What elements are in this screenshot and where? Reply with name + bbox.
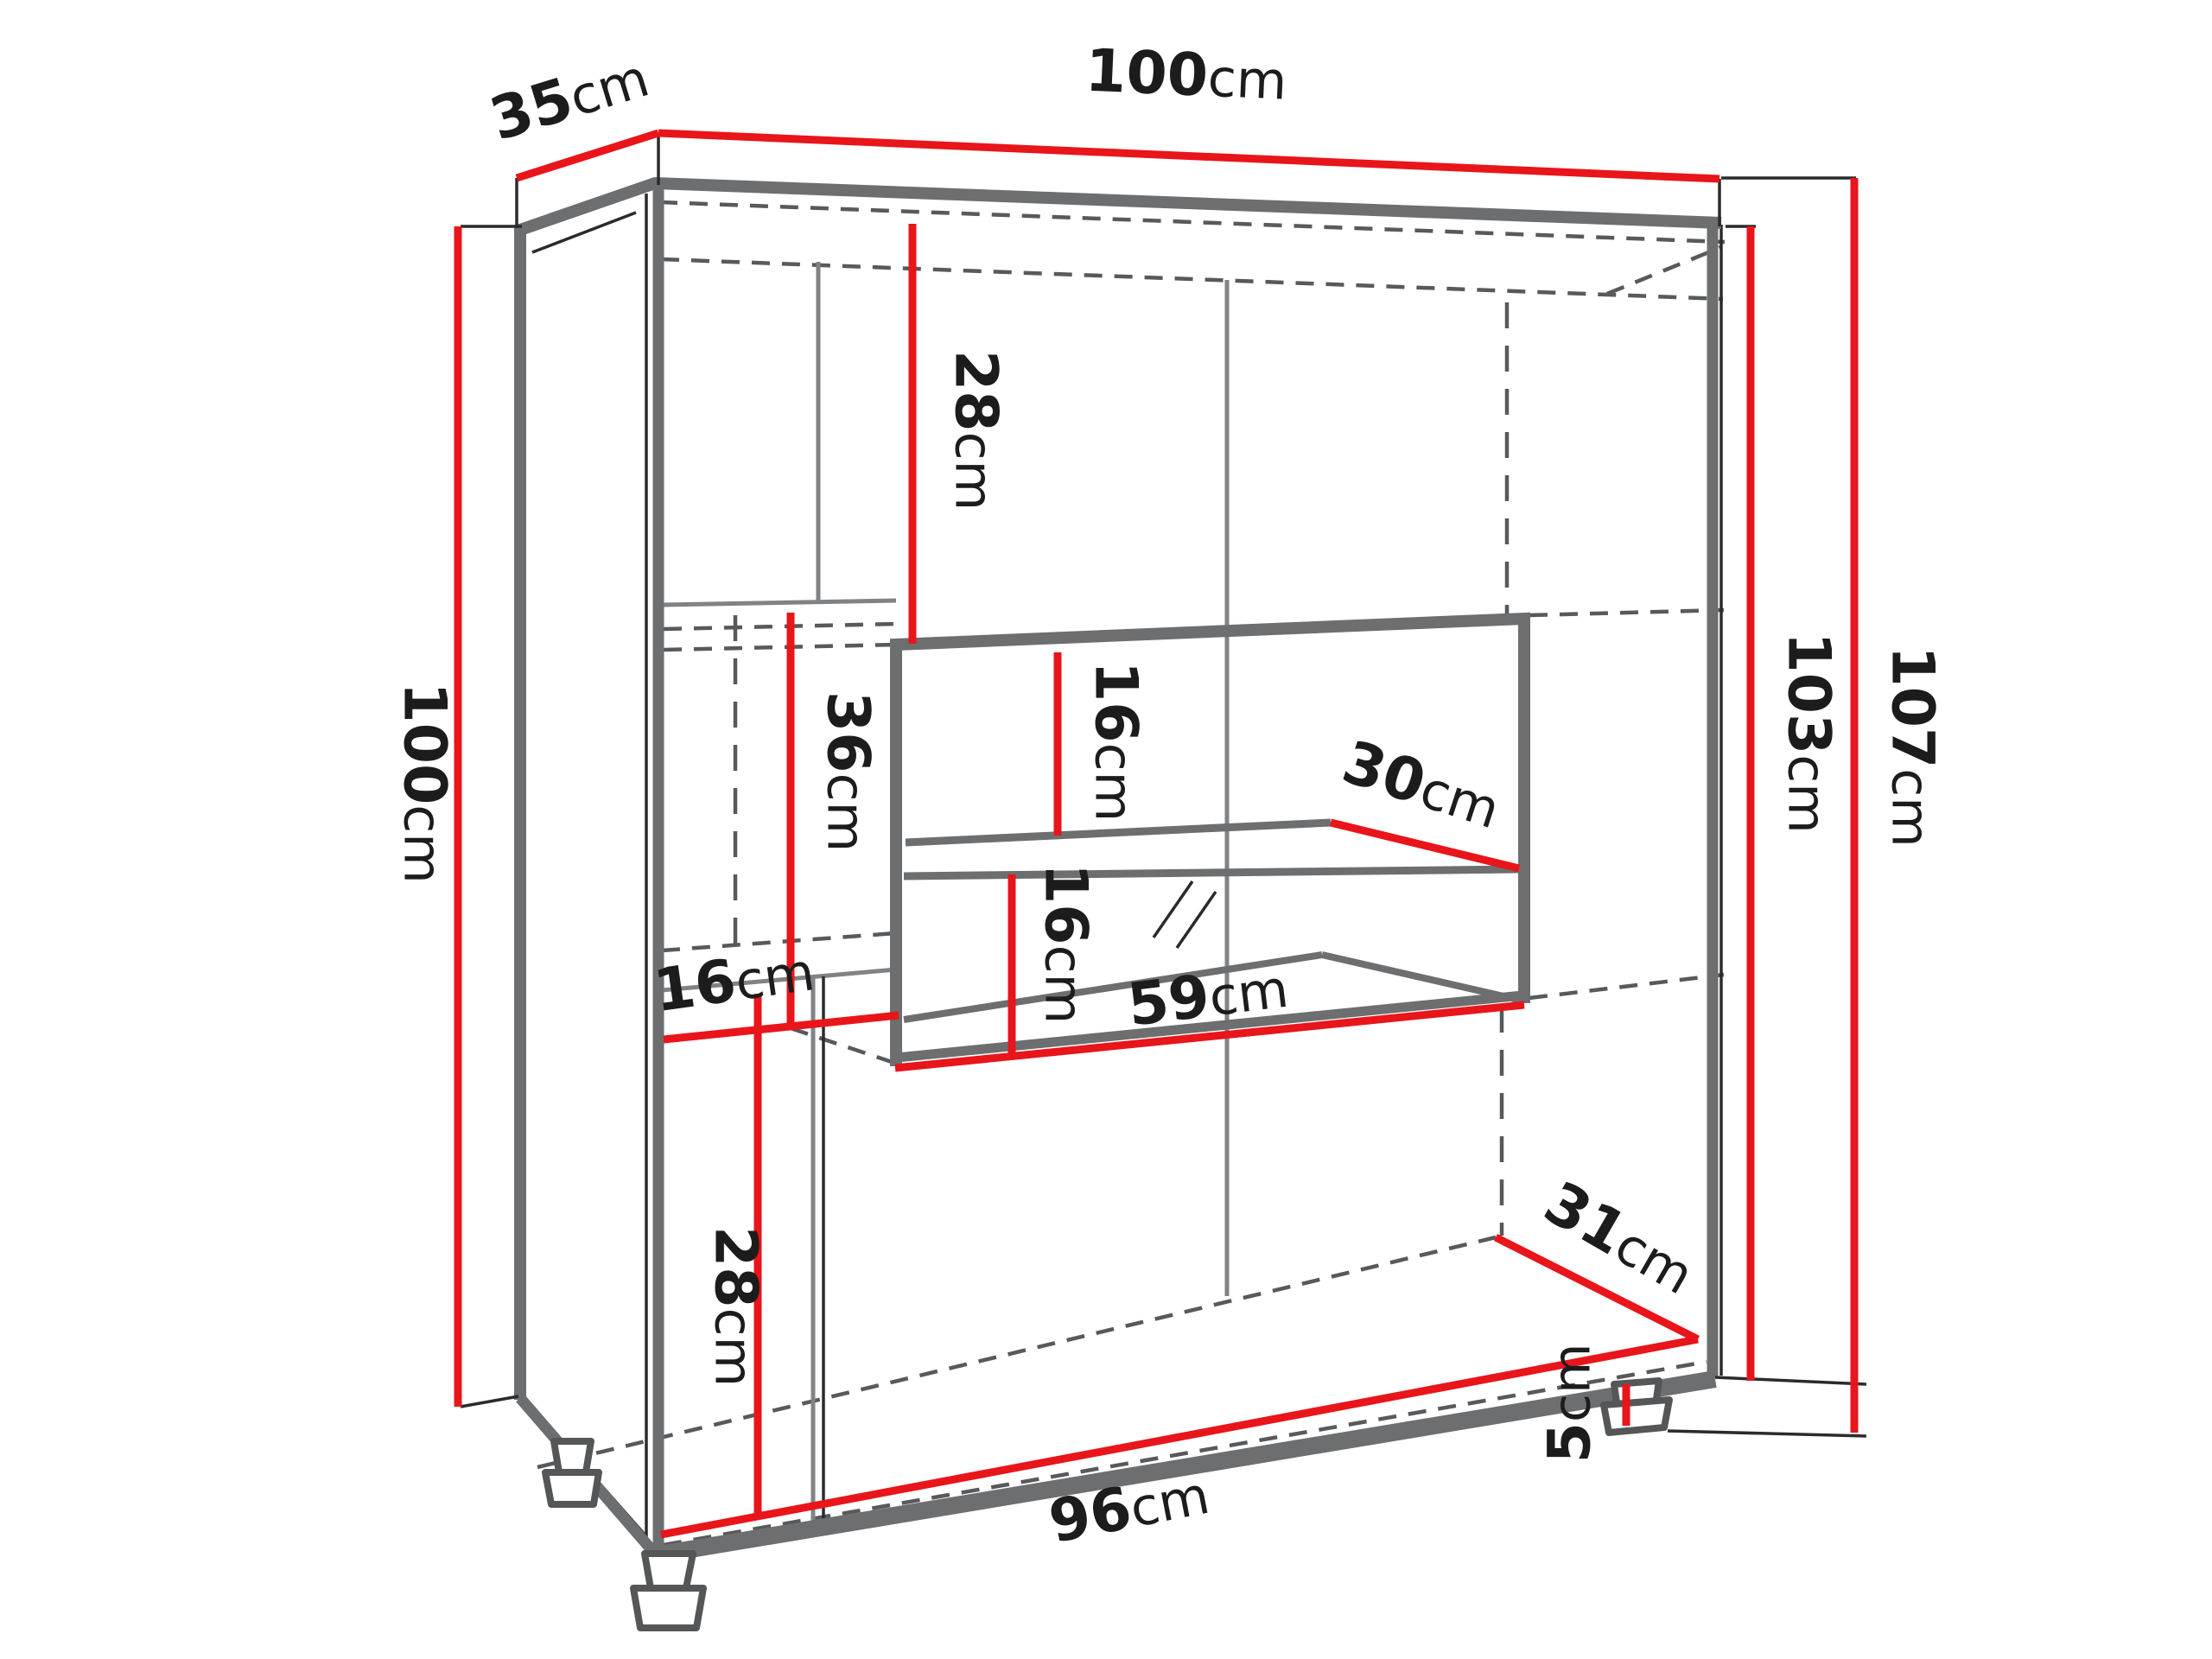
leg-front-left bbox=[633, 1554, 703, 1628]
glass-reflection-marks bbox=[1154, 881, 1216, 948]
dim-label-right-carcass: 103cm bbox=[1774, 632, 1842, 833]
dim-label-lower-height: 28cm bbox=[701, 1226, 769, 1387]
dim-label-right-total: 107cm bbox=[1878, 645, 1946, 847]
leg-front-right bbox=[1604, 1381, 1669, 1433]
cabinet-dimension-diagram: 35cm 100cm 100cm 28cm 16cm 30cm 36cm 16c… bbox=[0, 0, 2212, 1659]
dim-label-left-height: 100cm bbox=[390, 682, 458, 883]
cabinet-outline bbox=[520, 183, 1721, 1555]
dim-label-bottom-depth: 31cm bbox=[1533, 1169, 1707, 1308]
dim-line-top-width bbox=[658, 133, 1719, 179]
display-box-floor-side-edge bbox=[1322, 955, 1522, 1001]
dim-label-upper-height: 28cm bbox=[941, 350, 1009, 511]
dim-label-top-depth: 35cm bbox=[483, 42, 657, 155]
glass-shelf-front-edge bbox=[904, 869, 1519, 876]
glass-shelf-back-edge bbox=[906, 823, 1331, 842]
dim-label-middle-height: 36cm bbox=[813, 691, 881, 852]
dim-label-glass-depth: 30cm bbox=[1335, 728, 1509, 843]
dim-label-top-width: 100cm bbox=[1084, 37, 1288, 114]
dim-label-display-upper: 16cm bbox=[1081, 661, 1149, 822]
dim-label-display-lower: 16cm bbox=[1031, 863, 1099, 1024]
dim-label-leg-height: 5cm bbox=[1536, 1344, 1605, 1464]
leg-back-left bbox=[545, 1441, 599, 1504]
